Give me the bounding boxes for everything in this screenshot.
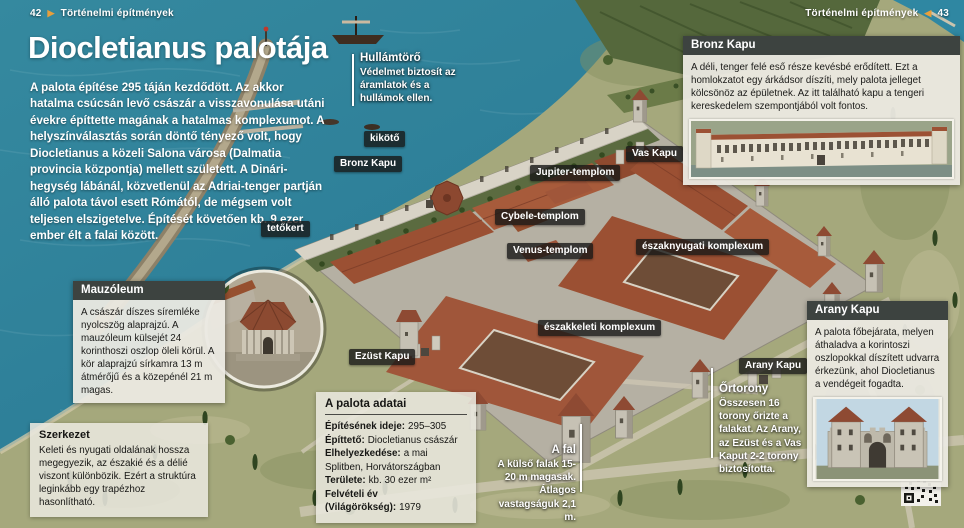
box-mauzoleum-body: A császár díszes síremléke nyolcszög ala… (73, 300, 225, 403)
box-bronz-body: A déli, tenger felé eső része kevésbé er… (683, 55, 960, 119)
page-title: Diocletianus palotája (28, 30, 328, 66)
fact-label: Területe: (325, 475, 366, 486)
callout-ortorony: Őrtorony Összesen 16 torony őrizte a fal… (719, 383, 813, 476)
map-label-arany-kapu: Arany Kapu (739, 358, 807, 374)
box-arany-title: Arany Kapu (807, 301, 948, 320)
page-number-left: 42 (30, 8, 42, 19)
fact-row: Felvételi év (Világörökség):1979 (325, 488, 467, 515)
page-number-right: 43 (937, 8, 949, 19)
box-szerkezet-body: Keleti és nyugati oldalának hossza megeg… (39, 444, 199, 509)
map-label-jupiter-templom: Jupiter-templom (530, 165, 620, 181)
box-mauzoleum: Mauzóleum A császár díszes síremléke nyo… (73, 281, 225, 403)
infographic-spread: 42 ▶ Történelmi építmények Történelmi ép… (0, 0, 964, 528)
box-arany-body: A palota főbejárata, melyen áthaladva a … (807, 320, 948, 397)
callout-fal-title: A fal (490, 444, 576, 456)
fact-value: 295–305 (408, 421, 446, 432)
map-label-ezust-kapu: Ezüst Kapu (349, 349, 415, 365)
callout-hullamtoro-title: Hullámtörő (360, 52, 464, 64)
map-label-vas-kapu: Vas Kapu (626, 146, 683, 162)
section-title-right: Történelmi építmények (805, 8, 918, 19)
fact-row: Építésének ideje:295–305 (325, 420, 467, 434)
hullamtoro-lead-line (352, 54, 354, 106)
fact-value: kb. 30 ezer m² (369, 475, 432, 486)
callout-hullamtoro: Hullámtörő Védelmet biztosít az áramlato… (360, 52, 464, 106)
box-szerkezet-title: Szerkezet (39, 429, 199, 441)
box-arany-kapu: Arany Kapu A palota főbejárata, melyen á… (807, 301, 948, 487)
arrow-right-icon: ▶ (48, 8, 55, 19)
section-title-left: Történelmi építmények (61, 8, 174, 19)
callout-ortorony-title: Őrtorony (719, 383, 813, 395)
map-label-bronz-kapu: Bronz Kapu (334, 156, 402, 172)
map-label-tetokert: tetőkert (261, 221, 310, 237)
page-header-left: 42 ▶ Történelmi építmények (30, 8, 174, 19)
fact-label: Építésének ideje: (325, 421, 405, 432)
arrow-left-icon: ◀ (924, 8, 931, 19)
fact-label: Felvételi év (Világörökség): (325, 489, 396, 514)
box-adatai-title: A palota adatai (325, 398, 467, 415)
map-label-eszaknyugati-komplexum: északnyugati komplexum (636, 239, 769, 255)
fact-row: Elhelyezkedése:a mai Splitben, Horvátors… (325, 447, 467, 474)
fal-lead-line (580, 424, 582, 492)
box-szerkezet: Szerkezet Keleti és nyugati oldalának ho… (30, 423, 208, 517)
callout-fal: A fal A külső falak 15-20 m magasak. Átl… (490, 444, 576, 524)
callout-hullamtoro-body: Védelmet biztosít az áramlatok és a hull… (360, 66, 464, 106)
fact-row: Területe:kb. 30 ezer m² (325, 474, 467, 488)
bronz-kapu-photo (689, 119, 954, 179)
intro-paragraph: A palota építése 295 táján kezdődött. Az… (30, 80, 326, 245)
page-header-right: Történelmi építmények ◀ 43 (805, 8, 949, 19)
ortorony-lead-line (711, 368, 713, 458)
map-label-venus-templom: Venus-templom (507, 243, 593, 259)
fact-value: Diocletianus császár (368, 435, 458, 446)
callout-ortorony-body: Összesen 16 torony őrizte a falakat. Az … (719, 397, 813, 476)
fact-label: Elhelyezkedése: (325, 448, 401, 459)
fact-value: 1979 (399, 502, 421, 513)
map-label-eszakkeleti-komplexum: északkeleti komplexum (538, 320, 661, 336)
fact-row: Építtető:Diocletianus császár (325, 434, 467, 448)
box-mauzoleum-title: Mauzóleum (73, 281, 225, 300)
map-label-kikoto: kikötő (364, 131, 405, 147)
box-bronz-title: Bronz Kapu (683, 36, 960, 55)
box-palota-adatai: A palota adatai Építésének ideje:295–305… (316, 392, 476, 523)
callout-fal-body: A külső falak 15-20 m magasak. Átlagos v… (490, 458, 576, 524)
fact-label: Építtető: (325, 435, 365, 446)
arany-kapu-photo (813, 397, 942, 481)
box-bronz-kapu: Bronz Kapu A déli, tenger felé eső része… (683, 36, 960, 185)
map-label-cybele-templom: Cybele-templom (495, 209, 585, 225)
